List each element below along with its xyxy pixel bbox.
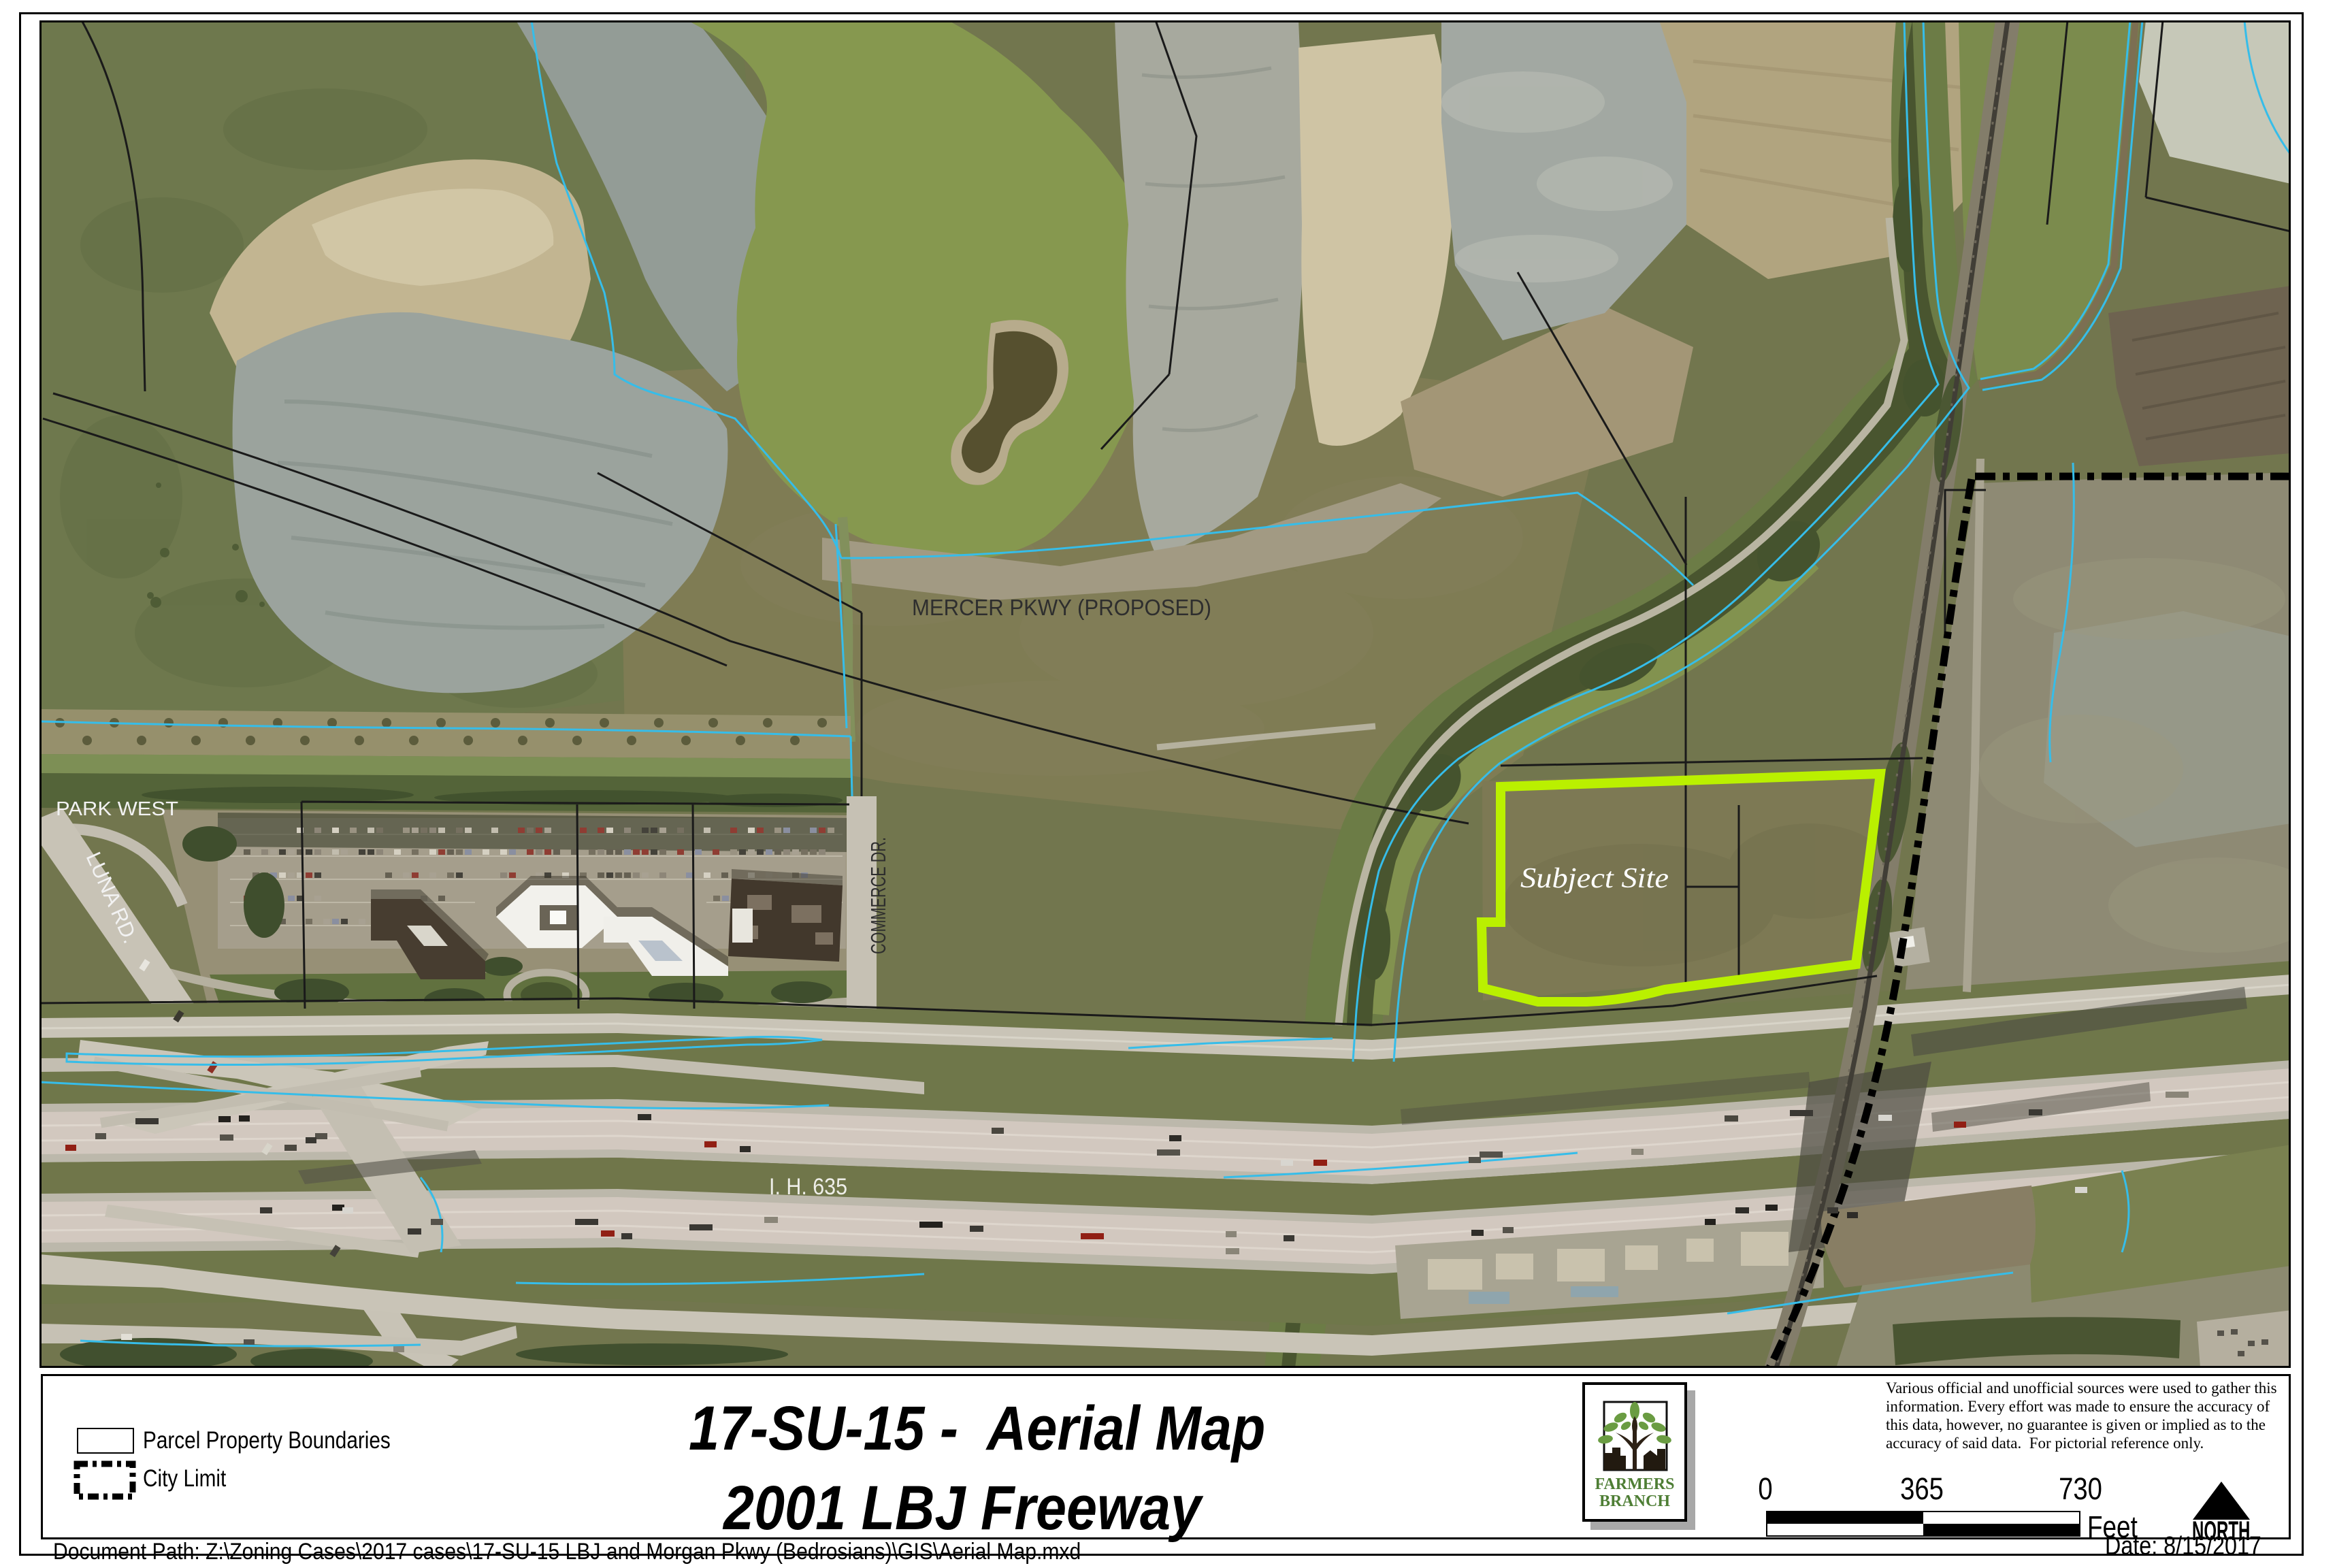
svg-text:FARMERS: FARMERS	[1595, 1475, 1675, 1493]
svg-text:BRANCH: BRANCH	[1599, 1492, 1670, 1510]
